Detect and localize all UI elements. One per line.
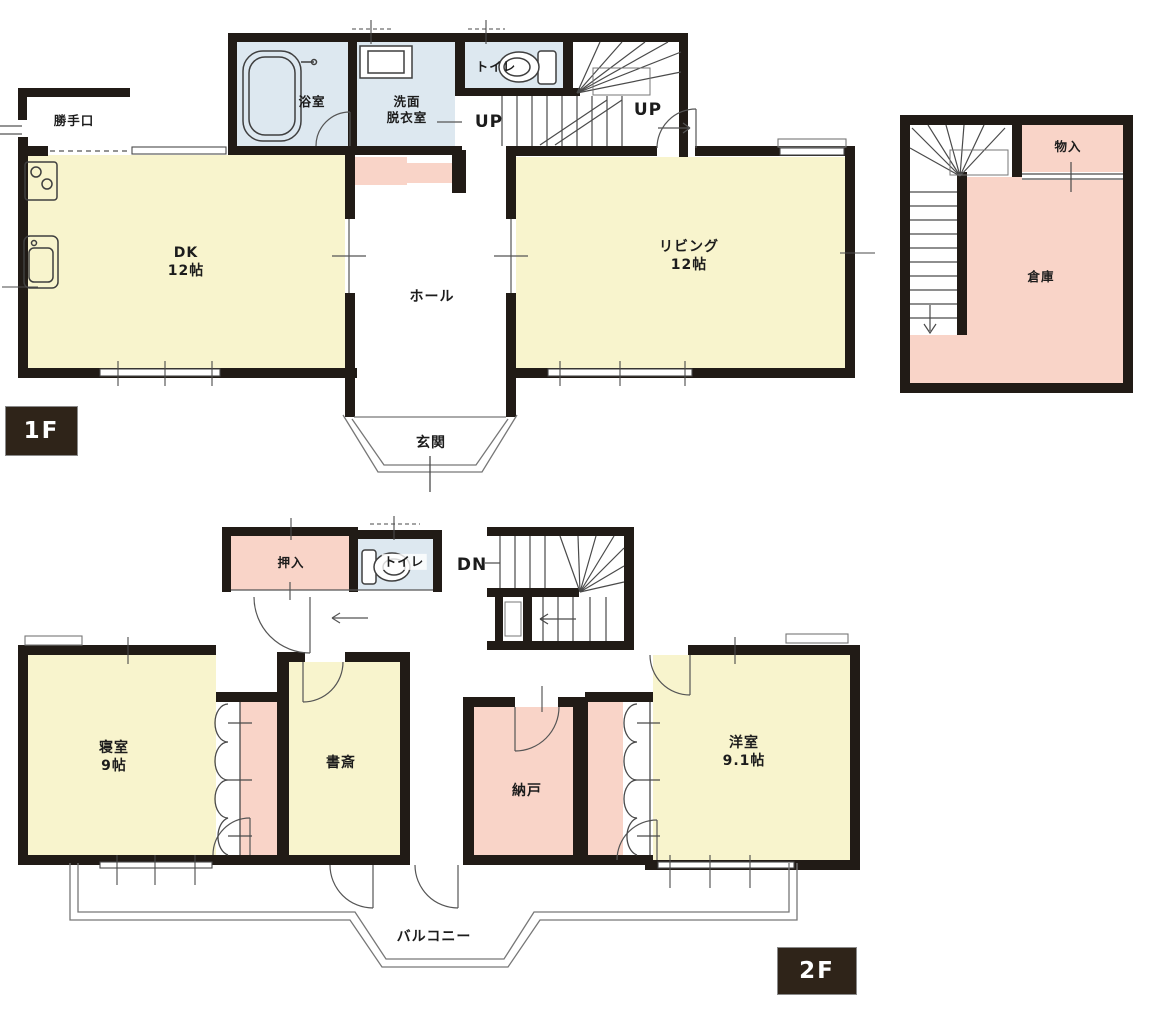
label-dk-size: 12帖 xyxy=(168,262,204,280)
floor-badge-1f: 1F xyxy=(5,406,78,456)
wall xyxy=(18,855,216,865)
label-entrance: 玄関 xyxy=(416,434,446,452)
wall xyxy=(487,527,634,536)
wall xyxy=(18,645,216,655)
wall xyxy=(228,146,462,155)
western-closet xyxy=(588,702,623,855)
label-washroom: 洗面 脱衣室 xyxy=(387,94,428,127)
label-bath: 浴室 xyxy=(298,94,325,110)
wall xyxy=(1012,115,1022,177)
wall xyxy=(433,539,442,592)
label-western: 洋室 9.1帖 xyxy=(723,734,766,770)
entrance-porch xyxy=(343,415,517,492)
label-storage: 物入 xyxy=(1054,139,1081,155)
wall xyxy=(455,88,580,96)
label-western-name: 洋室 xyxy=(729,734,759,752)
floor-badge-2f: 2F xyxy=(777,947,857,995)
wall xyxy=(463,697,474,865)
wall xyxy=(18,88,130,97)
wall xyxy=(18,645,28,865)
wall xyxy=(1123,115,1133,393)
bedroom-closet xyxy=(240,702,277,855)
wall xyxy=(487,588,579,597)
label-hall: ホール xyxy=(410,288,455,306)
wall xyxy=(523,597,532,641)
wall xyxy=(18,88,27,120)
wall xyxy=(228,33,237,155)
wall xyxy=(900,383,1133,393)
label-down: DN xyxy=(457,554,487,576)
wall xyxy=(588,855,653,865)
wall xyxy=(289,855,410,865)
wall xyxy=(495,597,503,641)
wall xyxy=(585,692,653,702)
label-balcony: バルコニー xyxy=(397,928,472,946)
label-bedroom-name: 寝室 xyxy=(99,739,129,757)
wall xyxy=(506,293,516,378)
annex-stairs-run xyxy=(910,125,957,335)
wall xyxy=(573,697,588,865)
wall xyxy=(506,146,657,156)
label-washroom-line1: 洗面 xyxy=(393,94,420,110)
room-bath xyxy=(237,42,348,146)
label-study: 書斎 xyxy=(326,754,356,772)
wall xyxy=(563,33,573,96)
floorplan: 勝手口 浴室 洗面 脱衣室 トイレ UP UP DK 12帖 ホール リビング … xyxy=(0,0,1160,1024)
wall xyxy=(400,652,410,865)
label-bedroom: 寝室 9帖 xyxy=(99,739,129,775)
wall xyxy=(222,527,358,536)
wall xyxy=(349,530,442,539)
wall xyxy=(18,146,48,156)
wall xyxy=(222,527,231,592)
label-dk-name: DK xyxy=(174,244,198,262)
label-western-size: 9.1帖 xyxy=(723,752,766,770)
label-nando: 納戸 xyxy=(512,782,542,800)
label-up-left: UP xyxy=(475,111,503,133)
label-warehouse: 倉庫 xyxy=(1027,269,1054,285)
wall xyxy=(289,652,305,662)
balcony-outline xyxy=(70,863,797,967)
wall xyxy=(455,33,465,96)
wall xyxy=(957,172,967,335)
wall xyxy=(645,860,860,870)
hall-cupboard-a xyxy=(354,157,407,185)
label-living-name: リビング xyxy=(659,238,719,256)
wall xyxy=(348,33,357,155)
wall xyxy=(345,155,355,219)
wall xyxy=(277,652,289,865)
wall xyxy=(624,527,634,650)
hall-cupboard-b xyxy=(407,163,452,183)
label-washroom-line2: 脱衣室 xyxy=(387,110,428,126)
wall xyxy=(18,368,357,378)
label-toilet-1f: トイレ xyxy=(476,59,517,75)
wall xyxy=(18,137,28,378)
label-living: リビング 12帖 xyxy=(659,238,719,274)
label-living-size: 12帖 xyxy=(671,256,707,274)
wall xyxy=(452,150,466,193)
label-oshiire: 押入 xyxy=(277,555,304,571)
wall xyxy=(845,148,855,378)
wall xyxy=(679,33,688,157)
label-dk: DK 12帖 xyxy=(168,244,204,280)
label-backdoor: 勝手口 xyxy=(54,113,95,129)
wall xyxy=(506,368,855,378)
wall xyxy=(695,146,855,156)
wall xyxy=(688,645,860,655)
wall xyxy=(900,115,910,393)
label-bedroom-size: 9帖 xyxy=(101,757,127,775)
wall xyxy=(463,697,515,707)
wall xyxy=(345,368,355,417)
wall xyxy=(345,293,355,378)
wall xyxy=(463,855,588,865)
wall xyxy=(487,641,634,650)
wall xyxy=(506,368,516,417)
label-up-right: UP xyxy=(634,99,662,121)
living-door-icon xyxy=(657,109,696,148)
wall xyxy=(850,645,860,870)
label-toilet-2f: トイレ xyxy=(382,554,427,570)
wall xyxy=(506,156,516,219)
